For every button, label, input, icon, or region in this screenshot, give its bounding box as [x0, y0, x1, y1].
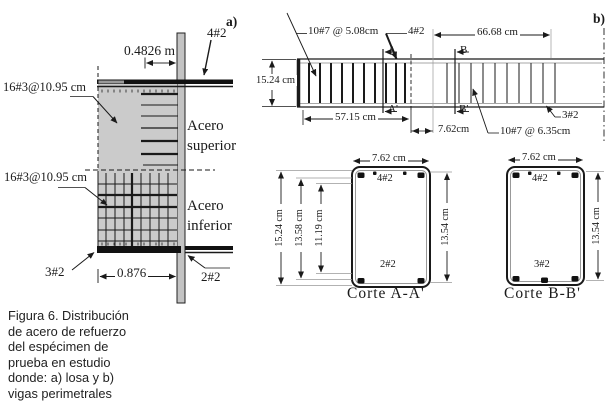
sec-b-width-dim: 7.62 cm	[520, 152, 558, 163]
sec-b-height-right: 13.54 cm	[592, 202, 604, 250]
sec-a-height-outer: 15.24 cm	[275, 204, 287, 252]
caption-line: de acero de refuerzo	[8, 324, 168, 340]
sec-b-top-bars: 4#2	[532, 173, 548, 184]
label-elev-top-bars: 4#2	[408, 26, 425, 38]
cut-label-b-top: B	[460, 45, 467, 57]
bottom-slab-bar	[97, 246, 181, 253]
figure-canvas: a) 0.4826 m 4#2 16#3@10.95 cm 16#3@10.95…	[0, 0, 612, 409]
label-acero-superior: Acero superior	[187, 116, 253, 157]
dim-gap: 7.62cm	[438, 124, 469, 135]
caption-line: vigas perimetrales	[8, 386, 168, 402]
label-elev-bottom-bars: 3#2	[562, 110, 579, 122]
column	[177, 33, 185, 303]
caption-line: Figura 6. Distribución	[8, 308, 168, 324]
sec-b-title: Corte B-B'	[504, 286, 581, 302]
label-right-stirrups: 10#7 @ 6.35cm	[500, 126, 570, 138]
label-acero-inferior: Acero inferior	[187, 196, 253, 237]
sec-a-top-bars: 4#2	[377, 173, 393, 184]
caption-line: del espécimen de	[8, 339, 168, 355]
cut-label-b-bottom: B'	[459, 104, 468, 116]
label-top-mesh: 16#3@10.95 cm	[3, 81, 86, 94]
sec-a-title: Corte A-A'	[347, 286, 425, 302]
sec-a-height-mid: 13.58 cm	[295, 204, 307, 252]
sec-a-bottom-bars: 2#2	[380, 259, 396, 270]
dim-top-width: 0.4826 m	[124, 44, 175, 58]
label-left-stirrups: 10#7 @ 5.08cm	[308, 26, 378, 38]
sec-a-height-inner: 11.19 cm	[315, 204, 327, 252]
label-bottom-left-bars: 3#2	[45, 265, 65, 279]
slab-panel-geometry	[85, 33, 233, 303]
cut-label-a-top: A	[388, 45, 396, 57]
panel-a-label: a)	[226, 15, 237, 29]
bottom-right-beam	[185, 246, 233, 250]
caption-line: prueba en estudio	[8, 355, 168, 371]
panel-b-label: b)	[593, 12, 605, 26]
caption-line: donde: a) losa y b)	[8, 370, 168, 386]
label-bottom-mesh: 16#3@10.95 cm	[2, 171, 89, 184]
section-b-geometry	[507, 160, 604, 285]
dim-bottom-width: 0.876	[115, 266, 148, 280]
sec-a-height-right: 13.54 cm	[441, 203, 453, 251]
cut-label-a-bottom: A'	[388, 104, 398, 116]
sec-a-width-dim: 7.62 cm	[370, 153, 408, 164]
dim-right-span: 66.68 cm	[475, 27, 520, 39]
dim-beam-height: 15.24 cm	[254, 75, 297, 86]
sec-b-bottom-bars: 3#2	[534, 259, 550, 270]
dim-left-span: 57.15 cm	[333, 112, 378, 124]
label-top-beam-bars: 4#2	[207, 26, 227, 40]
label-bottom-right-bars: 2#2	[201, 270, 221, 284]
